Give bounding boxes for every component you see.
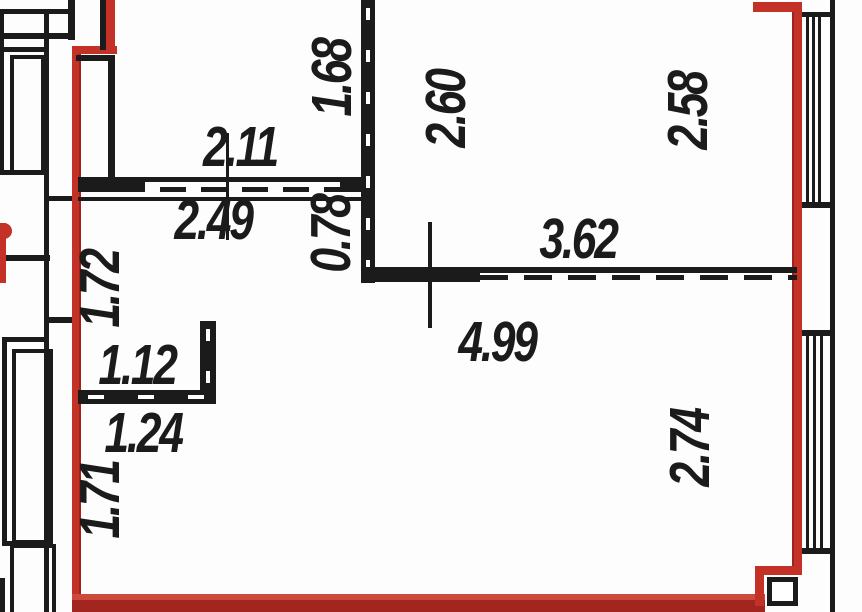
dimension-label: 1.24	[104, 400, 181, 466]
dimension-labels: 2.112.491.682.602.580.783.624.991.721.12…	[0, 0, 862, 612]
floor-plan: 2.112.491.682.602.580.783.624.991.721.12…	[0, 0, 862, 612]
dimension-label: 1.71	[67, 461, 133, 538]
dimension-label: 3.62	[539, 206, 616, 272]
dimension-label: 2.58	[655, 72, 721, 149]
dimension-label: 1.72	[67, 250, 133, 327]
dimension-label: 2.60	[413, 70, 479, 147]
dimension-label: 2.49	[174, 187, 251, 253]
dimension-label: 4.99	[458, 309, 535, 375]
dimension-label: 1.68	[299, 39, 365, 116]
dimension-label: 0.78	[298, 195, 364, 272]
dimension-label: 1.12	[98, 332, 175, 398]
dimension-label: 2.74	[657, 409, 723, 486]
dimension-label: 2.11	[203, 114, 277, 180]
